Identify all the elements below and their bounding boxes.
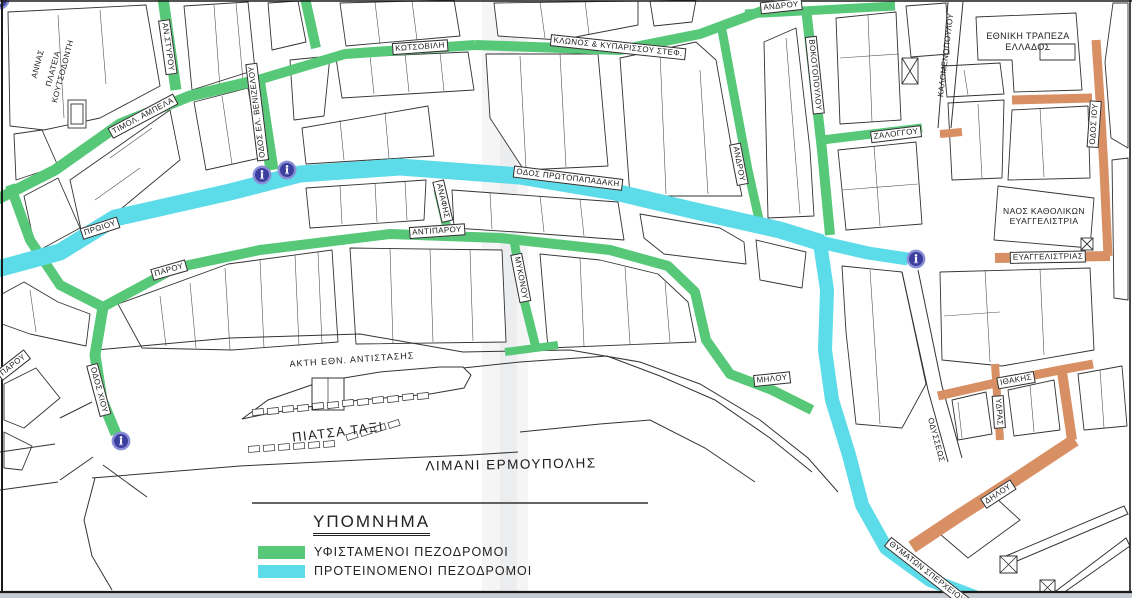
street-label-ydras: ΥΔΡΑΣ: [992, 395, 1006, 429]
building-label-national-bank: ΕΘΝΙΚΗ ΤΡΑΠΕΖΑ ΕΛΛΑΔΟΣ: [986, 31, 1069, 53]
plateia-square: [68, 100, 86, 128]
building-label-catholic-church: ΝΑΟΣ ΚΑΘΟΛΙΚΩΝ ΕΥΑΓΓΕΛΙΣΤΡΙΑ: [1003, 206, 1085, 226]
legend-label-proposed: ΠΡΟΤΕΙΝΟΜΕΝΟΙ ΠΕΖΟΔΡΟΜΟΙ: [314, 564, 532, 578]
map-canvas: [0, 0, 1132, 598]
legend-swatch-existing: [258, 546, 305, 559]
legend-item-proposed: ΠΡΟΤΕΙΝΟΜΕΝΟΙ ΠΕΖΟΔΡΟΜΟΙ: [258, 564, 628, 578]
pedestrian-sign-icon: [254, 167, 270, 183]
street-label-evaggelistrias: ΕΥΑΓΓΕΛΙΣΤΡΙΑΣ: [1010, 251, 1087, 264]
pedestrian-sign-icon: [279, 162, 295, 178]
pedestrian-sign-icon: [113, 433, 129, 449]
legend-label-existing: ΥΦΙΣΤΑΜΕΝΟΙ ΠΕΖΟΔΡΟΜΟΙ: [314, 545, 509, 559]
pedestrian-sign-icon: [908, 251, 924, 267]
legend: ΥΠΟΜΝΗΜΑ ΥΦΙΣΤΑΜΕΝΟΙ ΠΕΖΟΔΡΟΜΟΙ ΠΡΟΤΕΙΝΟ…: [258, 512, 628, 578]
legend-swatch-proposed: [258, 565, 305, 578]
ermoupoli-pedestrian-plan-map: ΑΝΝΑΣ ΠΛΑΤΕΙΑ ΚΟΥΤΣΟΔΟΝΤΗ ΑΝ.ΣΤΥΡΟΥ ΤΙΜΟ…: [0, 0, 1132, 598]
legend-title: ΥΠΟΜΝΗΜΑ: [313, 512, 430, 536]
legend-item-existing: ΥΦΙΣΤΑΜΕΝΟΙ ΠΕΖΟΔΡΟΜΟΙ: [258, 545, 628, 559]
area-label-limani-ermoupolis: ΛΙΜΑΝΙ ΕΡΜΟΥΠΟΛΗΣ: [425, 455, 596, 474]
